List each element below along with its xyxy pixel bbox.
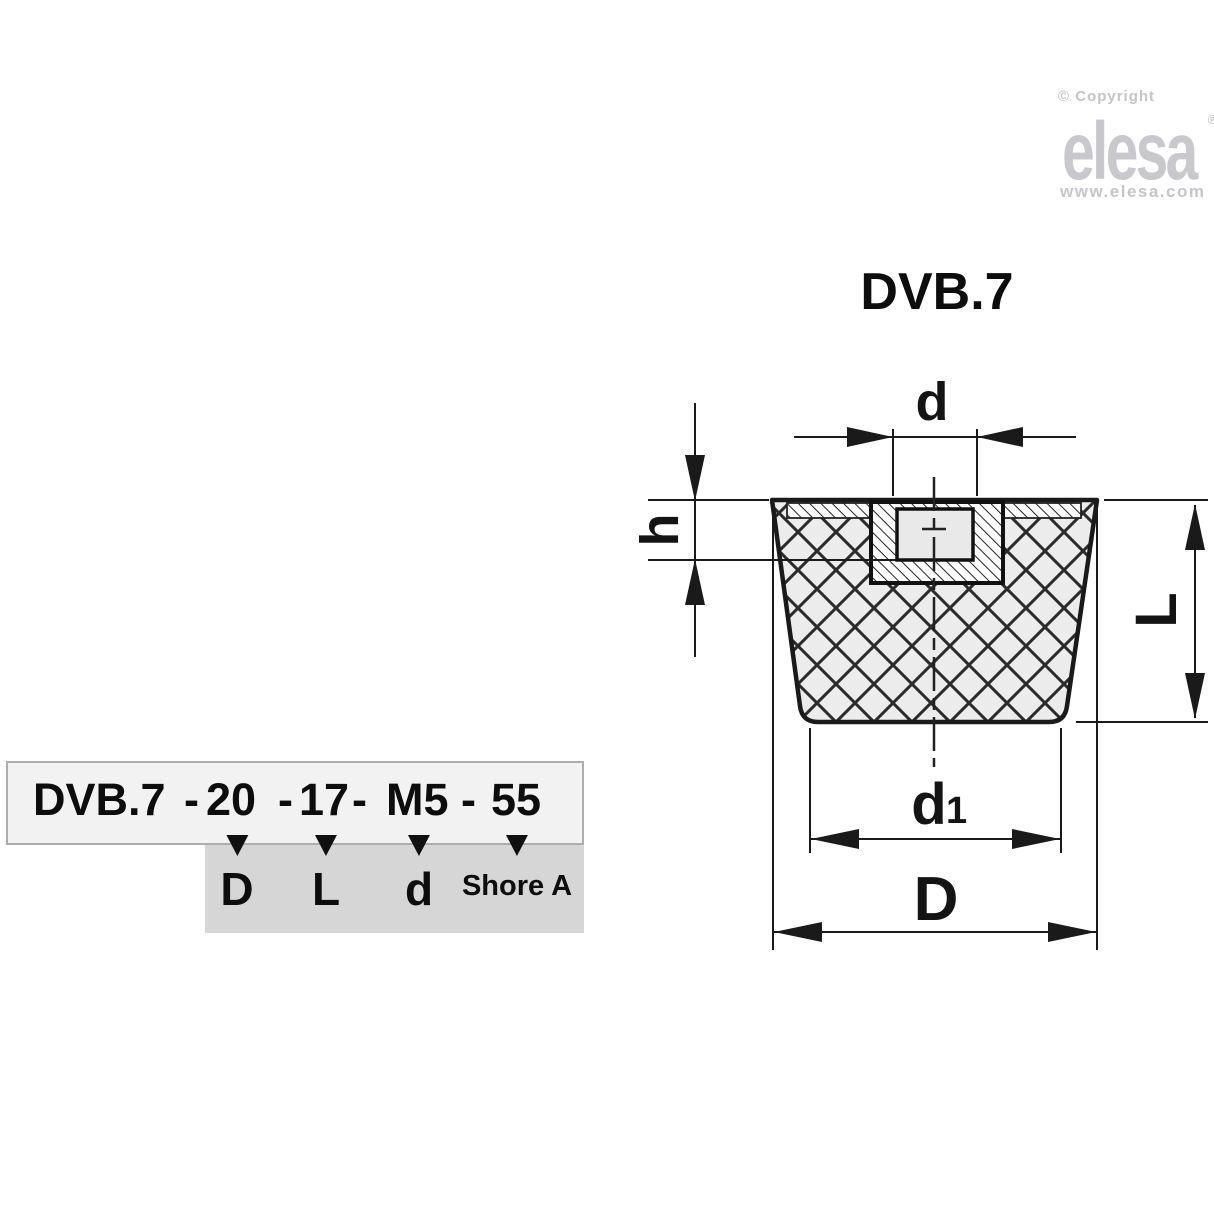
code-value-D: 20 (206, 777, 256, 822)
code-value-d: M5 (386, 777, 449, 822)
legend-label-D: D (220, 866, 253, 912)
dimension-D-label: D (914, 865, 959, 934)
arrow-down-icon (506, 835, 528, 856)
legend-label-L: L (312, 866, 340, 912)
dimension-d1-subscript: 1 (946, 790, 967, 832)
legend-col-D: D (220, 835, 253, 912)
code-separator: - (352, 777, 367, 822)
code-separator: - (278, 777, 293, 822)
dimension-L-label: L (1124, 592, 1189, 627)
technical-drawing: d h L d 1 (0, 0, 1214, 1214)
arrow-down-icon (408, 835, 430, 856)
code-value-L: 17 (299, 777, 349, 822)
legend-label-shore-a: Shore A (462, 872, 572, 901)
legend-label-d: d (405, 866, 433, 912)
code-separator: - (184, 777, 199, 822)
dimension-h-label: h (630, 514, 690, 547)
code-prefix: DVB.7 (33, 777, 166, 822)
legend-col-L: L (312, 835, 340, 912)
legend-col-shore-a: Shore A (462, 835, 572, 901)
ordering-code-box: DVB.7 - 20 - 17 - M5 - 55 (6, 761, 584, 845)
catalog-page: © Copyright elesa ® www.elesa.com DVB.7 (0, 0, 1214, 1214)
arrow-down-icon (226, 835, 248, 856)
code-value-shore: 55 (491, 777, 541, 822)
dimension-d1-label: d (911, 772, 946, 837)
dimension-d-label: d (916, 372, 949, 432)
code-separator: - (461, 777, 476, 822)
legend-col-d: d (405, 835, 433, 912)
arrow-down-icon (315, 835, 337, 856)
